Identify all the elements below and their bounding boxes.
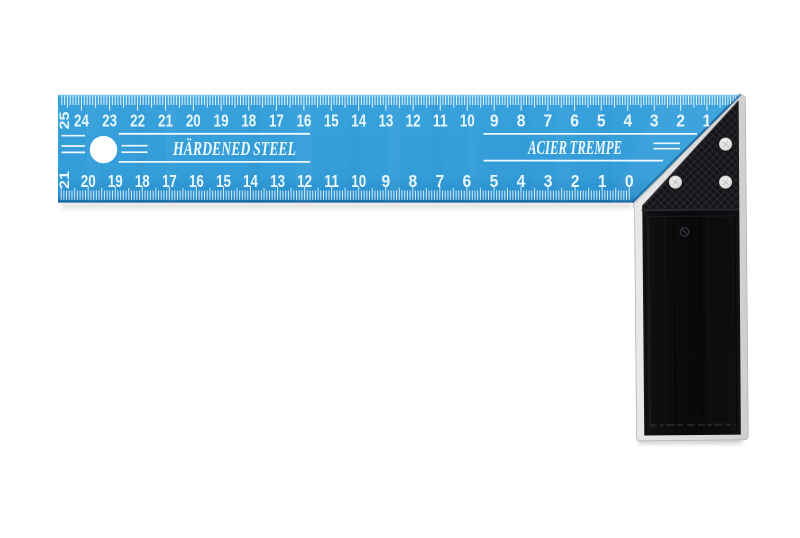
svg-text:HÄRDENED STEEL: HÄRDENED STEEL	[172, 139, 296, 160]
svg-text:12: 12	[406, 110, 421, 130]
svg-text:24: 24	[74, 110, 89, 130]
svg-text:8: 8	[408, 171, 417, 191]
svg-text:19: 19	[214, 110, 229, 130]
svg-text:25: 25	[57, 111, 72, 129]
svg-text:18: 18	[241, 110, 256, 130]
svg-text:11: 11	[324, 171, 339, 191]
svg-text:17: 17	[162, 171, 177, 191]
svg-text:19: 19	[108, 171, 123, 191]
svg-text:8: 8	[517, 110, 526, 130]
svg-text:2: 2	[676, 110, 685, 130]
svg-text:15: 15	[324, 110, 339, 130]
svg-text:6: 6	[570, 110, 579, 130]
svg-text:6: 6	[463, 171, 472, 191]
svg-text:14: 14	[351, 110, 366, 130]
svg-text:7: 7	[436, 171, 445, 191]
svg-text:1: 1	[598, 171, 607, 191]
svg-text:3: 3	[650, 110, 659, 130]
svg-text:12: 12	[297, 171, 312, 191]
svg-text:16: 16	[189, 171, 204, 191]
svg-text:13: 13	[378, 110, 393, 130]
svg-text:14: 14	[243, 171, 258, 191]
svg-text:20: 20	[81, 171, 96, 191]
svg-text:21: 21	[158, 110, 173, 130]
svg-text:18: 18	[135, 171, 150, 191]
svg-text:9: 9	[381, 171, 390, 191]
svg-text:11: 11	[433, 110, 448, 130]
svg-text:0: 0	[625, 171, 634, 191]
svg-text:20: 20	[186, 110, 201, 130]
svg-text:10: 10	[351, 171, 366, 191]
svg-text:16: 16	[296, 110, 311, 130]
svg-text:2: 2	[571, 171, 580, 191]
svg-text:15: 15	[216, 171, 231, 191]
svg-text:4: 4	[623, 110, 632, 130]
svg-text:9: 9	[490, 110, 499, 130]
svg-text:4: 4	[517, 171, 526, 191]
svg-text:22: 22	[130, 110, 145, 130]
svg-text:23: 23	[102, 110, 117, 130]
svg-text:5: 5	[490, 171, 499, 191]
svg-text:10: 10	[460, 110, 475, 130]
svg-text:3: 3	[544, 171, 553, 191]
svg-text:13: 13	[270, 171, 285, 191]
svg-text:17: 17	[269, 110, 284, 130]
svg-text:21: 21	[57, 171, 72, 189]
svg-text:7: 7	[544, 110, 553, 130]
svg-text:ACIER TREMPE: ACIER TREMPE	[527, 138, 622, 159]
svg-text:5: 5	[597, 110, 606, 130]
